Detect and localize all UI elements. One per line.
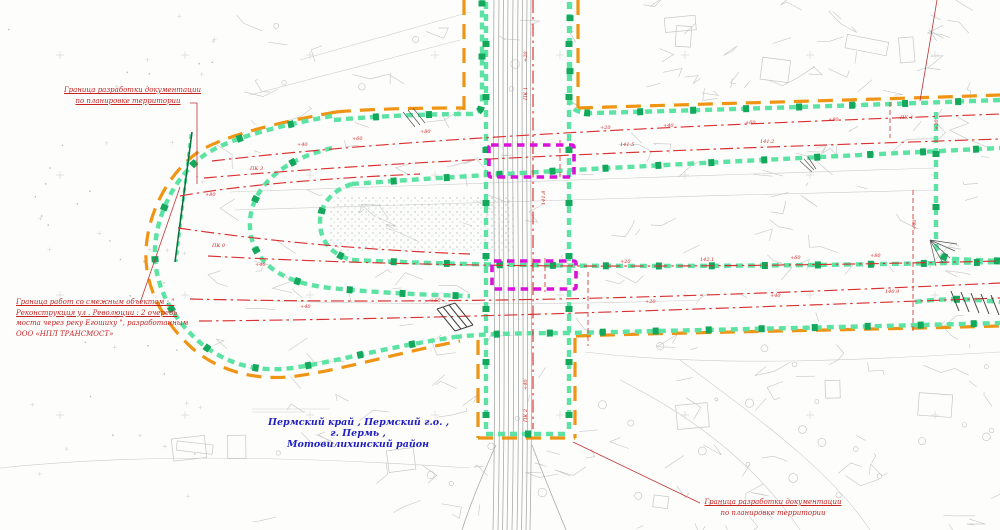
work-boundary-green bbox=[155, 0, 1000, 434]
svg-text:+80: +80 bbox=[205, 192, 216, 198]
svg-text:+40: +40 bbox=[300, 304, 311, 310]
svg-text:+40: +40 bbox=[255, 262, 266, 268]
svg-text:+60: +60 bbox=[352, 136, 363, 142]
annotation-line: Граница разработки документации bbox=[693, 497, 853, 508]
svg-text:ПК 3: ПК 3 bbox=[249, 166, 263, 172]
svg-text:+80: +80 bbox=[828, 117, 839, 123]
svg-text:ПК 4: ПК 4 bbox=[899, 115, 913, 121]
planning-boundary-orange bbox=[146, 0, 1000, 438]
svg-text:+20: +20 bbox=[523, 51, 529, 62]
svg-text:+40: +40 bbox=[297, 142, 308, 148]
plan-drawing: +40+60+80+20+40+60+80ПК 4ПК 3141.5141.2+… bbox=[0, 0, 1000, 530]
annotation-line: Граница разработки документации bbox=[64, 85, 192, 96]
annotation-line: моста через реку Егошиху ", разработанны… bbox=[16, 318, 176, 329]
svg-text:ПК 0: ПК 0 bbox=[211, 243, 226, 249]
location-line: Мотовилихинский район bbox=[268, 440, 448, 451]
svg-text:140.9: 140.9 bbox=[885, 289, 900, 295]
svg-text:+20: +20 bbox=[620, 259, 631, 265]
svg-text:+40: +40 bbox=[770, 293, 781, 299]
annotation-line: Граница работ со смежным объектом : " bbox=[16, 297, 176, 308]
adjacent-work-boundary-line bbox=[175, 132, 192, 262]
annotation-doc-boundary-top-left: Граница разработки документации по плани… bbox=[64, 85, 192, 106]
location-label: Пермский край , Пермский г.о. , г. Пермь… bbox=[268, 418, 448, 451]
svg-text:+60: +60 bbox=[430, 298, 441, 304]
annotation-adjacent-work-boundary: Граница работ со смежным объектом : " Ре… bbox=[16, 297, 176, 339]
svg-text:141.8: 141.8 bbox=[541, 191, 547, 205]
svg-text:+60: +60 bbox=[790, 255, 801, 261]
svg-text:ПК 2: ПК 2 bbox=[523, 409, 529, 423]
svg-text:ПК 1: ПК 1 bbox=[523, 87, 529, 101]
annotation-line: по планировке территории bbox=[693, 508, 853, 519]
svg-text:+40: +40 bbox=[523, 379, 529, 390]
svg-text:141.5: 141.5 bbox=[620, 142, 634, 148]
svg-text:+80: +80 bbox=[420, 129, 431, 135]
annotation-doc-boundary-bottom-right: Граница разработки документации по плани… bbox=[693, 497, 853, 518]
annotation-line: Реконструкция ул . Революции : 2 очередь bbox=[16, 308, 176, 319]
svg-text:141.2: 141.2 bbox=[760, 139, 774, 145]
svg-text:+60: +60 bbox=[745, 120, 756, 126]
drawing-canvas: +40+60+80+20+40+60+80ПК 4ПК 3141.5141.2+… bbox=[0, 0, 1000, 530]
svg-text:+40: +40 bbox=[663, 123, 674, 129]
svg-text:+20: +20 bbox=[600, 125, 611, 131]
svg-text:+20: +20 bbox=[934, 119, 940, 130]
annotation-line: ООО «НПЛ ТРАНСМОСТ» bbox=[16, 329, 176, 340]
svg-text:+20: +20 bbox=[645, 299, 656, 305]
svg-text:+80: +80 bbox=[870, 253, 881, 259]
svg-text:+40: +40 bbox=[912, 219, 918, 230]
annotation-line: по планировке территории bbox=[64, 96, 192, 107]
svg-text:142.1: 142.1 bbox=[700, 257, 714, 263]
